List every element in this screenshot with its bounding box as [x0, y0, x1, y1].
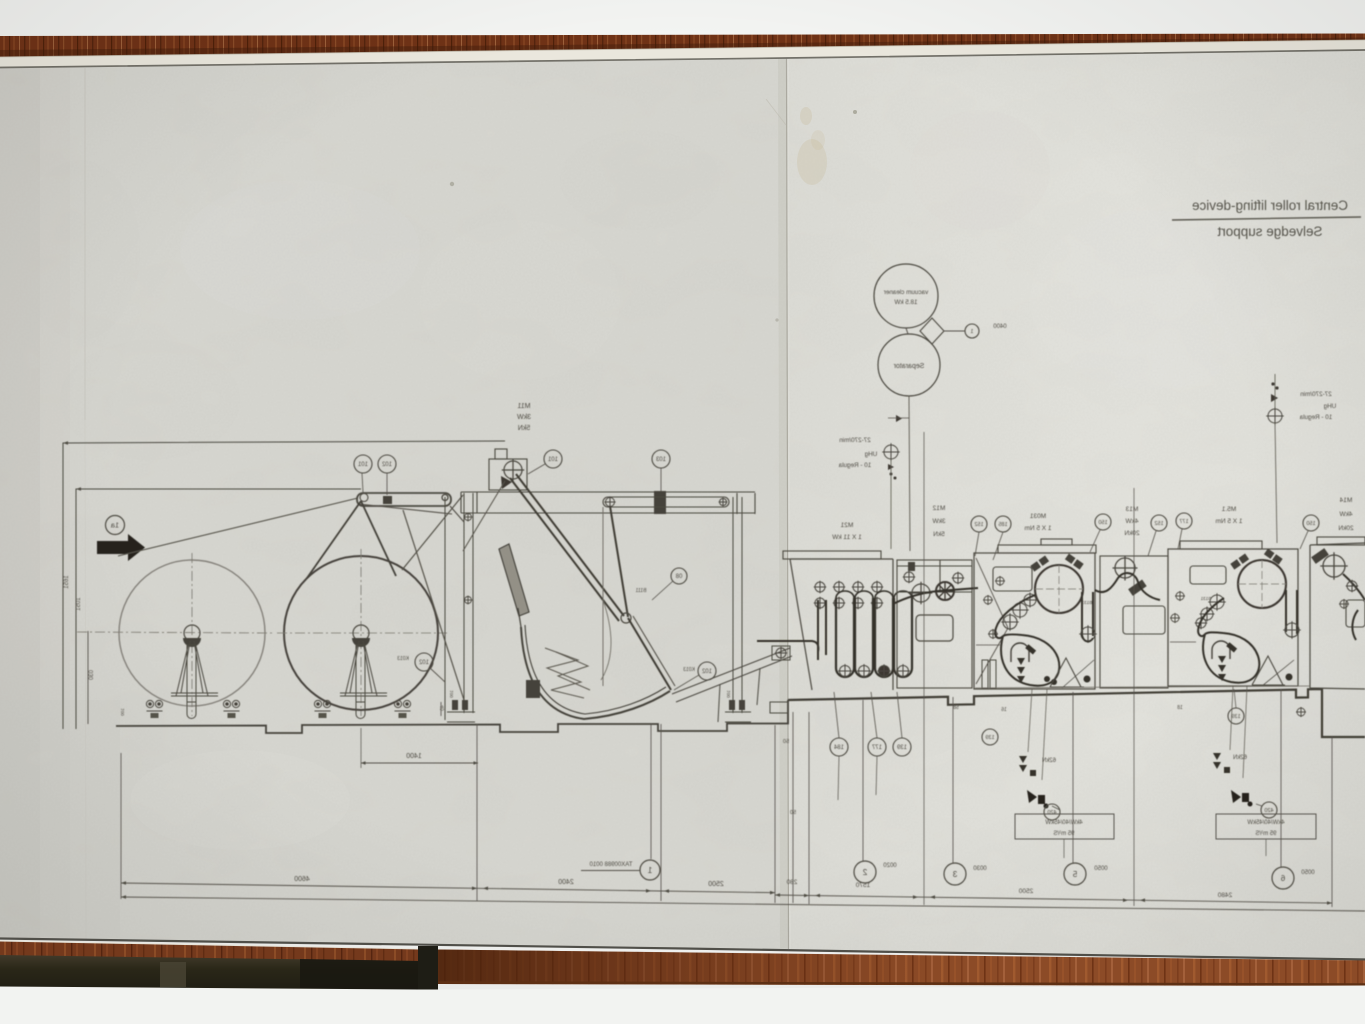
svg-text:1 X 11 kW: 1 X 11 kW — [831, 534, 861, 541]
svg-text:100: 100 — [120, 708, 125, 716]
svg-text:2500: 2500 — [708, 881, 724, 888]
svg-text:5kN: 5kN — [518, 425, 530, 432]
svg-text:150: 150 — [1098, 520, 1107, 526]
svg-text:1651: 1651 — [64, 575, 70, 589]
svg-text:420: 420 — [1047, 810, 1056, 816]
svg-text:0400: 0400 — [993, 324, 1007, 330]
svg-text:B131: B131 — [1081, 600, 1092, 605]
svg-text:M5.1: M5.1 — [1221, 506, 1236, 513]
svg-text:18.5 kW: 18.5 kW — [894, 299, 917, 306]
svg-text:M12: M12 — [932, 505, 945, 512]
svg-text:152: 152 — [974, 522, 983, 528]
svg-text:185: 185 — [998, 522, 1007, 528]
svg-text:M14: M14 — [1339, 497, 1352, 504]
svg-text:4600: 4600 — [294, 876, 310, 883]
svg-text:030: 030 — [89, 670, 95, 681]
svg-text:3kW: 3kW — [517, 414, 531, 421]
svg-text:UHg: UHg — [1323, 403, 1336, 410]
svg-text:139: 139 — [896, 745, 907, 751]
svg-text:3kW: 3kW — [932, 518, 946, 525]
svg-text:M031: M031 — [1029, 513, 1046, 520]
svg-text:100: 100 — [449, 690, 454, 698]
svg-text:K013: K013 — [397, 656, 409, 662]
svg-text:58: 58 — [953, 705, 959, 711]
svg-text:62kN: 62kN — [1042, 758, 1056, 764]
svg-text:Central roller lifting-device: Central roller lifting-device — [1192, 198, 1348, 213]
svg-text:Separator: Separator — [893, 363, 924, 370]
svg-text:152: 152 — [1154, 521, 1163, 527]
svg-text:184: 184 — [833, 745, 844, 751]
svg-text:139: 139 — [985, 735, 994, 741]
svg-text:0030: 0030 — [973, 866, 987, 872]
svg-text:27-270/min: 27-270/min — [1300, 391, 1332, 398]
svg-text:103: 103 — [655, 457, 666, 463]
svg-text:95 m³/S: 95 m³/S — [1053, 831, 1074, 837]
svg-text:4kW: 4kW — [1339, 511, 1353, 518]
svg-text:102: 102 — [381, 462, 392, 468]
svg-text:M21: M21 — [840, 522, 853, 529]
svg-text:1 X 5 Nm: 1 X 5 Nm — [1024, 525, 1051, 532]
svg-text:0020: 0020 — [883, 863, 897, 869]
svg-text:10 - Regula: 10 - Regula — [1299, 414, 1332, 421]
svg-text:420: 420 — [1264, 808, 1273, 814]
svg-text:1 X 5 Nm: 1 X 5 Nm — [1215, 518, 1242, 525]
svg-text:2500: 2500 — [1018, 888, 1033, 895]
svg-text:102: 102 — [418, 660, 429, 666]
svg-text:2: 2 — [862, 868, 867, 877]
svg-text:UHg: UHg — [864, 451, 877, 458]
svg-text:3: 3 — [952, 870, 957, 879]
svg-text:101: 101 — [357, 462, 368, 468]
svg-text:2400: 2400 — [558, 879, 574, 886]
svg-text:4kW/40/45kW: 4kW/40/45kW — [1247, 820, 1285, 826]
svg-text:08: 08 — [675, 574, 682, 580]
svg-text:177: 177 — [1179, 519, 1188, 525]
svg-text:95 m³/S: 95 m³/S — [1255, 831, 1276, 837]
svg-text:100: 100 — [726, 690, 731, 698]
svg-text:5kN: 5kN — [933, 531, 945, 538]
svg-text:1051: 1051 — [76, 597, 82, 611]
svg-text:TAX00988 0010: TAX00988 0010 — [589, 862, 633, 868]
svg-text:27-270/min: 27-270/min — [839, 437, 871, 444]
svg-text:10 - Regula: 10 - Regula — [838, 462, 871, 469]
svg-text:1a: 1a — [110, 521, 119, 530]
svg-text:B131: B131 — [1200, 596, 1211, 601]
svg-text:20kN: 20kN — [1124, 530, 1139, 537]
svg-text:1400: 1400 — [406, 753, 422, 760]
svg-text:M11: M11 — [517, 403, 530, 410]
svg-text:0050: 0050 — [1301, 870, 1315, 876]
svg-text:101: 101 — [547, 457, 558, 463]
svg-text:62kN: 62kN — [1233, 755, 1247, 761]
svg-text:5: 5 — [1072, 870, 1077, 879]
svg-text:0050: 0050 — [1094, 866, 1108, 872]
svg-text:139: 139 — [1231, 714, 1240, 720]
svg-text:2480: 2480 — [1217, 892, 1232, 899]
svg-text:20kN: 20kN — [1338, 525, 1353, 532]
svg-text:18: 18 — [1177, 705, 1183, 711]
svg-text:4kW/40/45kW: 4kW/40/45kW — [1045, 820, 1083, 826]
svg-text:4kW: 4kW — [1125, 518, 1139, 525]
svg-text:M13: M13 — [1125, 506, 1138, 513]
svg-text:K013: K013 — [683, 667, 695, 673]
svg-text:280: 280 — [786, 879, 797, 886]
svg-text:102: 102 — [701, 669, 712, 675]
svg-text:150: 150 — [1306, 521, 1315, 527]
svg-text:177: 177 — [871, 745, 882, 751]
svg-text:Selvedge support: Selvedge support — [1217, 224, 1322, 239]
svg-text:1: 1 — [647, 866, 652, 875]
svg-text:1: 1 — [970, 329, 973, 335]
svg-text:vacuum cleaner: vacuum cleaner — [884, 289, 928, 296]
svg-text:16: 16 — [1001, 707, 1007, 713]
svg-text:50: 50 — [783, 739, 789, 745]
svg-text:B111: B111 — [635, 588, 646, 594]
svg-text:6: 6 — [1280, 874, 1285, 883]
